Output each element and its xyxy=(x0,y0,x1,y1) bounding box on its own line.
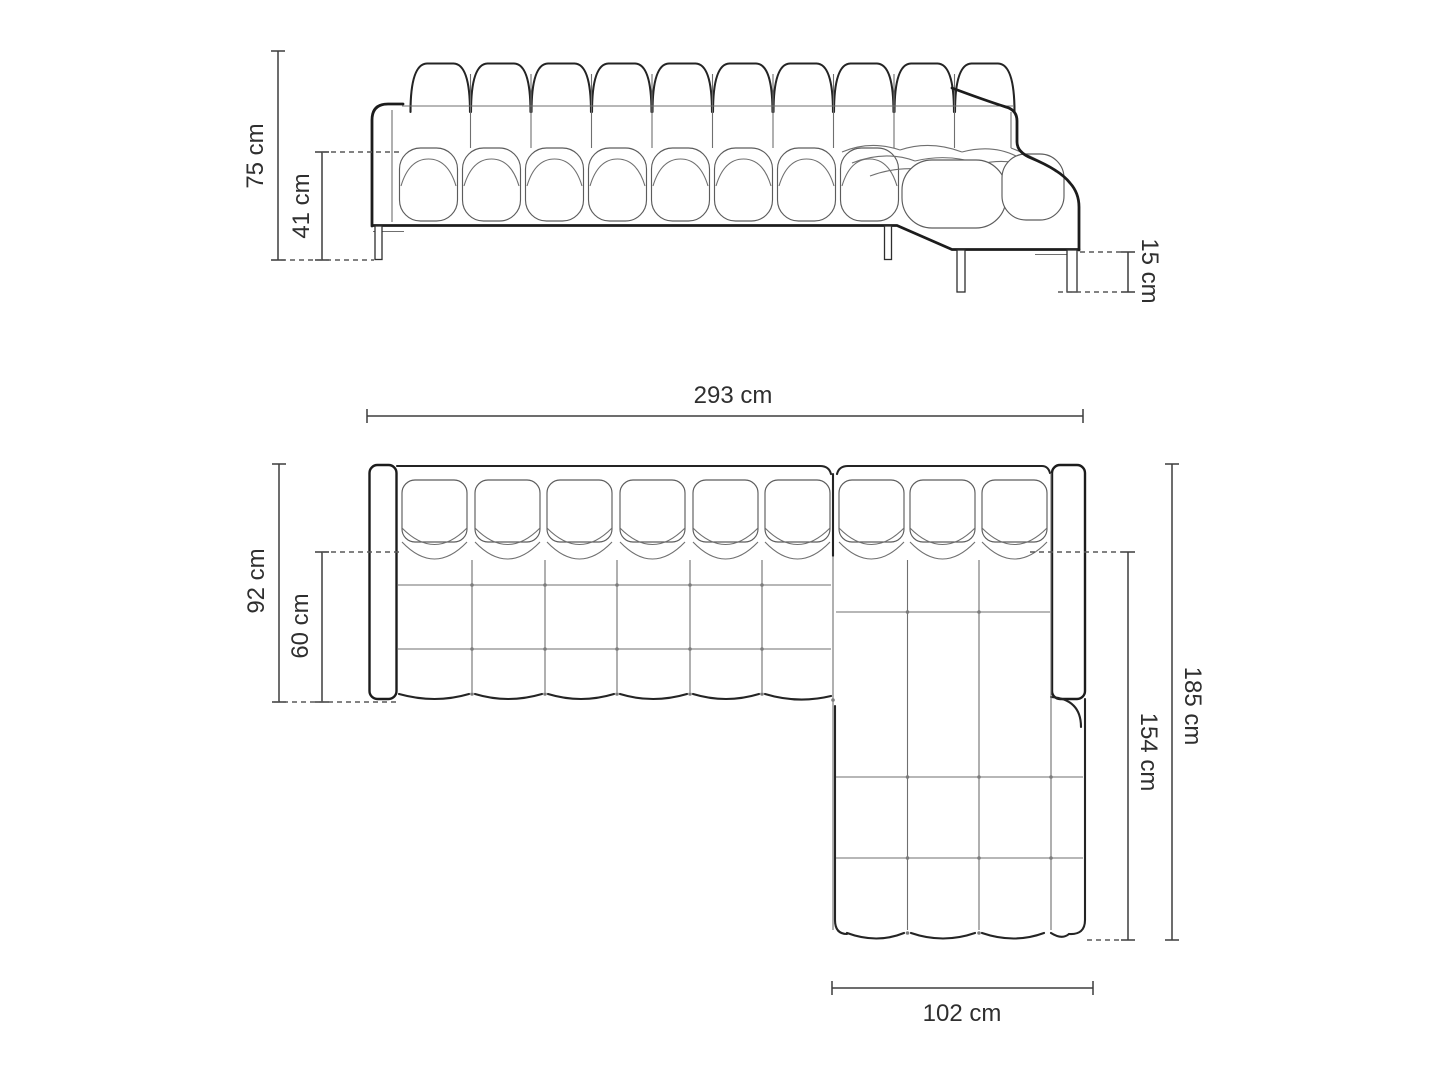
chaise-right-leg xyxy=(1067,250,1077,292)
dim-line-102cm xyxy=(832,981,1093,995)
plan-right-arm xyxy=(1052,465,1085,699)
front-left-arm xyxy=(372,104,403,226)
dim-line-92cm xyxy=(272,464,286,702)
front-left-leg xyxy=(375,226,382,260)
plan-chaise-left-edge xyxy=(835,706,847,934)
dim-line-60cm xyxy=(315,552,329,702)
sofa-dimension-diagram: 75 cm 41 cm 15 cm 293 cm 92 cm 60 cm 185… xyxy=(0,0,1449,1086)
chaise-left-leg xyxy=(957,250,965,292)
front-mid-leg xyxy=(885,226,892,260)
dim-label-leg-height: 15 cm xyxy=(1137,238,1161,303)
front-elevation-view xyxy=(372,64,1079,293)
dim-line-154cm xyxy=(1121,552,1135,940)
dim-line-75cm xyxy=(271,51,285,260)
dim-label-total-width: 293 cm xyxy=(694,384,773,408)
dim-label-chaise-width: 102 cm xyxy=(923,1002,1002,1026)
plan-chaise-right-edge xyxy=(1069,699,1085,934)
dim-label-seat-height: 41 cm xyxy=(290,173,314,238)
dim-line-15cm xyxy=(1121,252,1135,292)
dim-label-total-depth: 185 cm xyxy=(1180,667,1204,746)
dim-label-total-height: 75 cm xyxy=(244,123,268,188)
back-vertical-seams xyxy=(471,74,955,148)
plan-left-arm xyxy=(370,465,397,699)
front-seat-cushions xyxy=(400,148,899,221)
plan-top-view xyxy=(370,465,1086,939)
base-rail xyxy=(373,226,1079,250)
dim-label-chaise-length: 154 cm xyxy=(1136,713,1160,792)
plan-seat-front-edge xyxy=(399,694,831,700)
diagram-svg xyxy=(0,0,1449,1086)
dim-line-41cm xyxy=(315,152,329,260)
front-base-and-legs xyxy=(373,226,1079,293)
plan-chaise-front-edge xyxy=(847,933,1069,939)
dim-line-293cm xyxy=(367,409,1083,423)
plan-back-cushions xyxy=(402,480,1047,559)
dim-label-seat-depth: 60 cm xyxy=(289,593,313,658)
dim-line-185cm xyxy=(1165,464,1179,940)
dim-label-sofa-depth: 92 cm xyxy=(245,548,269,613)
front-back-cushions xyxy=(402,64,1015,149)
